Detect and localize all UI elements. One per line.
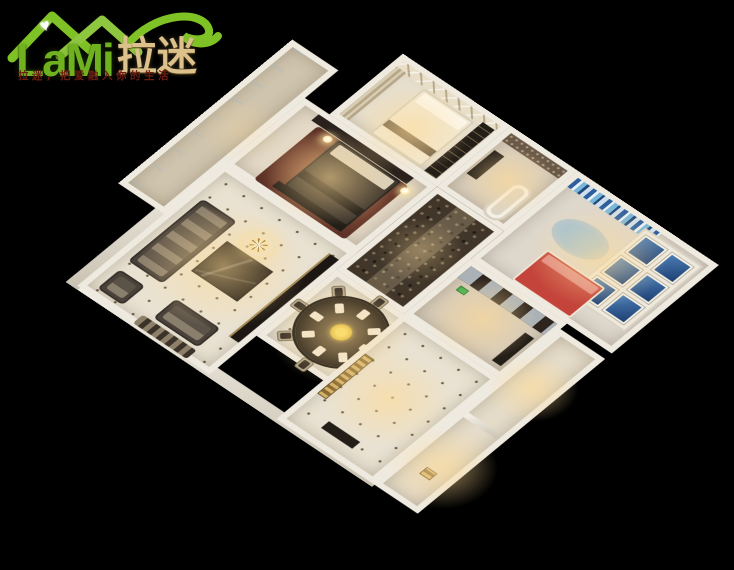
lami-logo: LaMi拉迷 ♥ 拉迷，把爱融入你的生活 bbox=[6, 2, 236, 94]
dining-chair bbox=[331, 285, 346, 298]
dinner-plate bbox=[335, 303, 345, 313]
mosaic-feature-wall bbox=[502, 133, 568, 179]
partition-wall bbox=[463, 413, 503, 440]
console-table bbox=[321, 421, 360, 449]
armchair bbox=[97, 269, 145, 305]
sofa-cushions bbox=[106, 276, 137, 299]
bed-runner bbox=[382, 119, 436, 156]
dinner-plate bbox=[301, 330, 314, 337]
dining-chair bbox=[276, 330, 294, 341]
gold-stool bbox=[419, 467, 437, 481]
logo-tagline: 拉迷，把爱融入你的生活 bbox=[18, 68, 172, 83]
render-canvas: LaMi拉迷 ♥ 拉迷，把爱融入你的生活 bbox=[0, 0, 734, 570]
green-sign bbox=[456, 286, 470, 296]
